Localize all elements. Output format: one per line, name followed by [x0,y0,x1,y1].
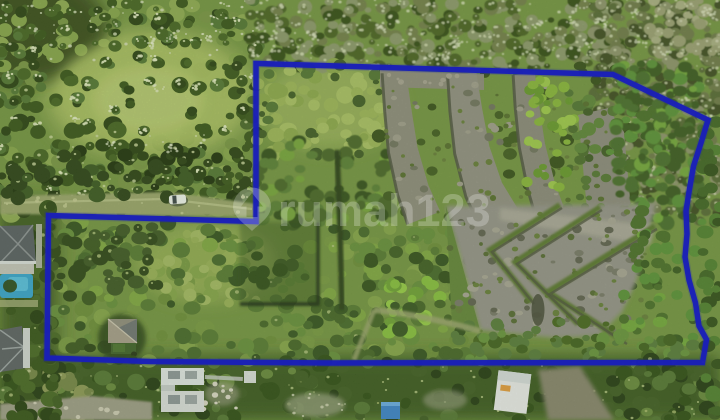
svg-text:rumah123: rumah123 [278,185,491,236]
